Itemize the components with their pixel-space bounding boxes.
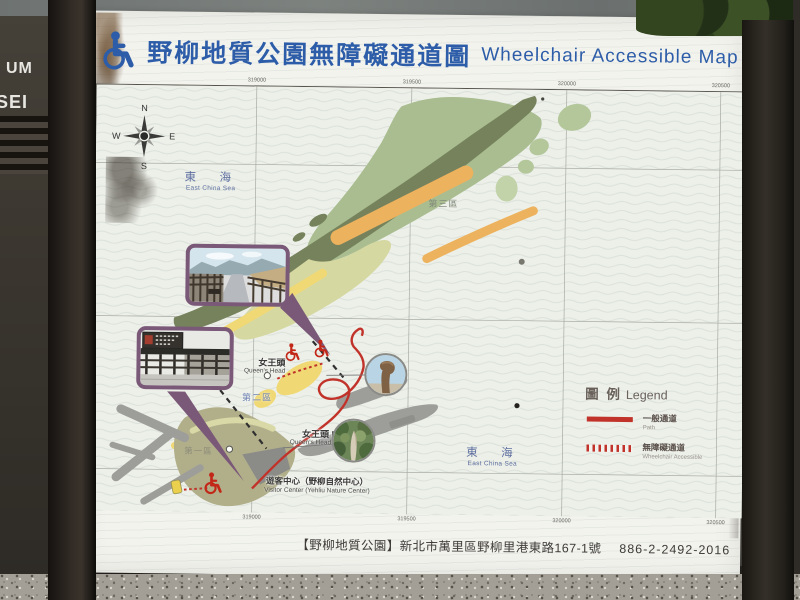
sea-label-east-china-sea: 東 海 East China Sea xyxy=(166,171,256,193)
background-left-sign-text: UM xyxy=(6,60,33,78)
legend-item-wheelchair-accessible: 無障礙通道 Wheelchair Accessible xyxy=(584,443,740,463)
photo-of-sign: UM SEI 野柳地質公園無障礙通道圖 Wheelchair Accessibl… xyxy=(0,0,800,600)
map-tick-label: 320000 xyxy=(545,81,589,88)
inset-photo-boardwalk xyxy=(185,244,290,307)
sign-post-left xyxy=(48,0,96,600)
map-tick-label: 320500 xyxy=(699,83,743,90)
entrance-photo-drawing xyxy=(140,330,230,386)
poi-label-visitor-center: 遊客中心（野柳自然中心） Visitor Center (Yehliu Natu… xyxy=(232,476,402,495)
map-tick-label: 319500 xyxy=(390,79,434,86)
map-area: N E S W 319000 319500 320000 320500 3190… xyxy=(91,84,746,518)
zone-label-area3: 第三區 xyxy=(415,198,471,209)
background-right-edge xyxy=(793,0,800,600)
compass-w: W xyxy=(112,131,121,141)
park-address: 新北市萬里區野柳里港東路167-1號 xyxy=(400,539,602,555)
dirt-stain xyxy=(105,157,162,224)
queens-head-2-photo-drawing xyxy=(333,420,373,460)
legend-swatch-path xyxy=(587,417,633,423)
gravel-ground xyxy=(0,574,800,600)
inset-photo-entrance xyxy=(136,326,234,390)
map-tick-label: 320500 xyxy=(694,520,738,527)
compass-n: N xyxy=(141,103,148,113)
wheelchair-icon xyxy=(100,30,139,72)
map-tick-label: 319000 xyxy=(230,514,274,521)
sign-footer: 【野柳地質公園】新北市萬里區野柳里港東路167-1號886-2-2492-201… xyxy=(296,534,730,558)
map-legend: 圖 例Legend 一般通道 Path 無障礙通道 Wheelchair Acc… xyxy=(584,383,741,463)
sign-title-zh: 野柳地質公園無障礙通道圖 xyxy=(147,33,471,73)
sign-post-right xyxy=(742,20,794,600)
sea-label-east-china-sea: 東 海 East China Sea xyxy=(447,447,537,469)
compass-e: E xyxy=(169,131,175,141)
background-left-sign-text: SEI xyxy=(0,92,28,113)
zone-label-area1: 第一區 xyxy=(170,446,226,456)
legend-item-path: 一般通道 Path xyxy=(585,414,741,434)
queens-head-photo-drawing xyxy=(366,355,406,395)
legend-swatch-wheelchair xyxy=(586,445,632,453)
sign-title-en: Wheelchair Accessible Map xyxy=(481,44,739,69)
park-name: 【野柳地質公園】 xyxy=(296,538,399,553)
wheelchair-accessible-map-sign: 野柳地質公園無障礙通道圖 Wheelchair Accessible Map xyxy=(80,10,747,580)
background-left-sign: UM SEI xyxy=(0,16,52,576)
legend-title: 圖 例Legend xyxy=(585,383,741,405)
poi-label-queens-head-2: 女王頭 II Queen's Head II xyxy=(252,428,336,447)
zone-label-area2: 第二區 xyxy=(229,392,285,403)
map-tick-label: 319500 xyxy=(385,516,429,523)
park-phone: 886-2-2492-2016 xyxy=(619,542,730,557)
boardwalk-photo-drawing xyxy=(189,248,286,303)
map-tick-label: 320000 xyxy=(540,518,584,525)
map-tick-label: 319000 xyxy=(235,77,279,84)
background-louvers xyxy=(0,116,48,174)
